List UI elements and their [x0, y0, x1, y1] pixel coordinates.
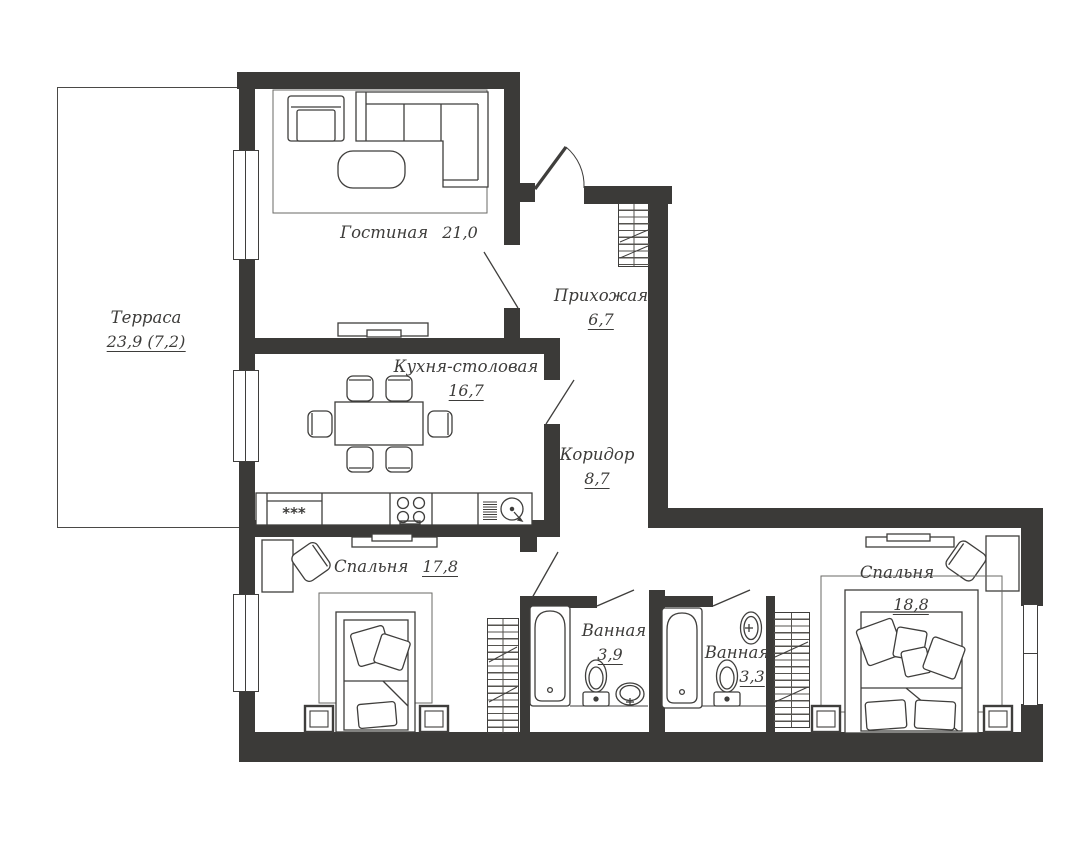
- shelf: [866, 534, 954, 547]
- bathtub: [530, 606, 570, 706]
- entrance-door: [535, 147, 584, 189]
- living-door: [484, 252, 518, 308]
- room-area: 3,3: [739, 667, 764, 687]
- fridge-stars: ***: [282, 504, 306, 522]
- room-name: Кухня-столовая: [394, 357, 539, 377]
- room-name: Прихожая: [554, 286, 648, 306]
- room-label-terrace: Терраса 23,9 (7,2): [107, 308, 186, 352]
- pillow: [914, 700, 955, 730]
- pillow: [865, 700, 907, 731]
- armchair: [288, 96, 344, 141]
- floor-plan: ***: [0, 0, 1087, 868]
- bedroom1-door: [532, 552, 558, 598]
- room-area: 23,9 (7,2): [107, 332, 186, 352]
- room-area: 17,8: [422, 557, 458, 577]
- wardrobe-hatch: [775, 642, 808, 702]
- desk-chair: [290, 540, 333, 583]
- room-label-bedroom1: Спальня 17,8: [334, 557, 458, 577]
- tv-console: [338, 323, 428, 337]
- furniture-layer: ***: [0, 0, 1087, 868]
- bath1-door: [597, 590, 634, 606]
- room-area: 8,7: [584, 469, 609, 489]
- room-name: Терраса: [111, 308, 182, 328]
- room-name: Ванная: [705, 643, 769, 663]
- nightstand: [984, 706, 1012, 732]
- shelf: [352, 534, 437, 547]
- desk: [262, 540, 293, 592]
- bed: [336, 612, 415, 732]
- room-label-bedroom2: Спальня 18,8: [860, 563, 934, 615]
- room-label-corridor: Коридор 8,7: [560, 445, 635, 489]
- room-label-bath1: Ванная 3,9: [582, 621, 646, 665]
- dining-table: [335, 402, 423, 445]
- room-area: 16,7: [448, 381, 484, 401]
- room-name: Спальня: [860, 563, 934, 583]
- room-area: 21,0: [442, 223, 478, 242]
- room-area: 6,7: [588, 310, 613, 330]
- room-label-bath2: Ванная 3,3: [705, 643, 769, 687]
- room-name: Гостиная: [340, 223, 428, 243]
- bath2-door: [713, 590, 750, 606]
- coffee-table: [338, 151, 405, 188]
- room-area: 3,9: [597, 645, 622, 665]
- nightstand: [305, 706, 333, 732]
- toilet: [583, 660, 609, 706]
- wardrobe-hatch: [620, 230, 648, 258]
- room-name: Спальня: [334, 557, 408, 577]
- room-label-hallway: Прихожая 6,7: [554, 286, 648, 330]
- washbasin: [741, 612, 762, 644]
- room-area: 18,8: [893, 595, 929, 615]
- wardrobe-hatch: [489, 647, 517, 702]
- bathtub: [662, 608, 702, 708]
- kitchen-door: [546, 380, 574, 424]
- room-label-kitchen: Кухня-столовая 16,7: [394, 357, 539, 401]
- nightstand: [812, 706, 840, 732]
- room-label-living: Гостиная 21,0: [340, 223, 478, 243]
- nightstand: [420, 706, 448, 732]
- room-name: Ванная: [582, 621, 646, 641]
- washbasin: [616, 683, 644, 706]
- room-name: Коридор: [560, 445, 635, 465]
- pillow: [357, 701, 397, 728]
